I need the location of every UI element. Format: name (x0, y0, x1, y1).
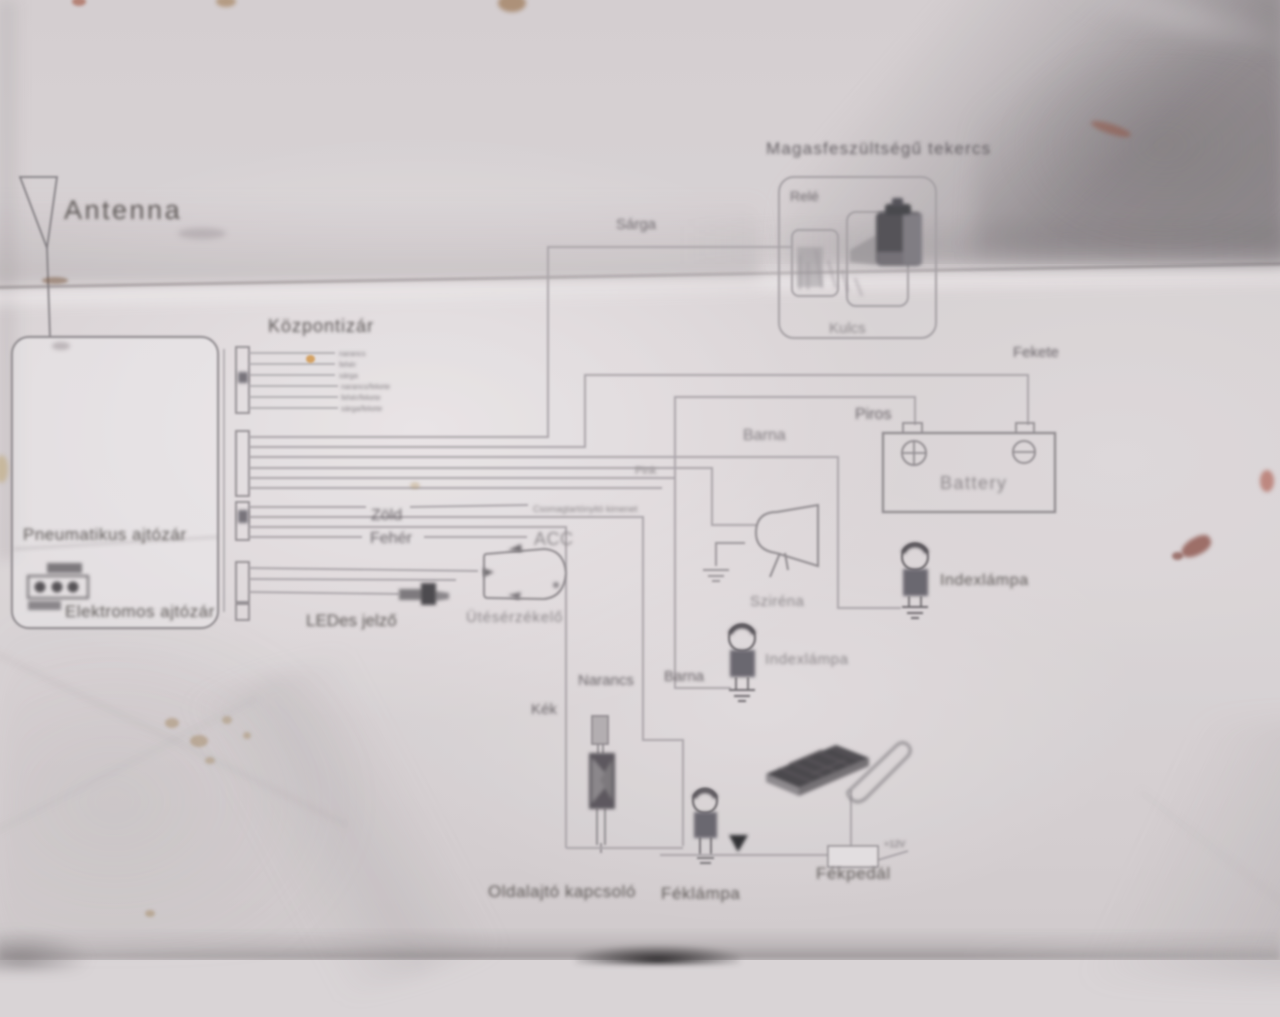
svg-text:+12V: +12V (884, 839, 905, 849)
svg-text:Központizár: Központizár (268, 316, 374, 336)
svg-text:Féklámpa: Féklámpa (661, 884, 740, 903)
svg-text:Piros: Piros (855, 406, 891, 423)
svg-text:Kulcs: Kulcs (829, 320, 866, 337)
svg-text:Pneumatikus ajtózár: Pneumatikus ajtózár (23, 525, 187, 544)
svg-text:LEDes jelző: LEDes jelző (306, 611, 397, 630)
svg-text:narancs/fekete: narancs/fekete (341, 382, 390, 391)
svg-text:Sárga: Sárga (616, 216, 657, 233)
svg-text:ACC: ACC (534, 529, 574, 549)
svg-text:Elektromos ajtózár: Elektromos ajtózár (65, 602, 215, 621)
svg-text:Antenna: Antenna (64, 195, 182, 225)
svg-text:Narancs: Narancs (578, 672, 634, 689)
svg-text:sárga: sárga (339, 371, 359, 380)
svg-text:Battery: Battery (940, 473, 1008, 493)
svg-text:fehér/fekete: fehér/fekete (341, 393, 381, 402)
svg-text:Sziréna: Sziréna (750, 593, 805, 610)
svg-text:Fekete: Fekete (1013, 344, 1059, 361)
svg-text:Csomagtartónyitó kimenet: Csomagtartónyitó kimenet (533, 504, 638, 514)
svg-text:narancs: narancs (339, 349, 366, 358)
svg-text:Magasfeszültségű tekercs: Magasfeszültségű tekercs (766, 139, 991, 158)
svg-text:Fékpedál: Fékpedál (816, 864, 891, 883)
svg-text:Ütésérzékelő: Ütésérzékelő (466, 608, 563, 626)
svg-text:Oldalajtó kapcsoló: Oldalajtó kapcsoló (488, 882, 636, 901)
svg-text:Kék: Kék (531, 701, 557, 718)
svg-text:Indexlámpa: Indexlámpa (765, 651, 849, 668)
svg-text:Indexlámpa: Indexlámpa (940, 572, 1029, 589)
svg-text:Pink: Pink (635, 465, 657, 477)
svg-text:Zöld: Zöld (371, 507, 402, 524)
svg-text:Barna: Barna (664, 668, 705, 685)
svg-text:Relé: Relé (790, 188, 819, 204)
svg-text:sárga/fekete: sárga/fekete (341, 404, 382, 413)
svg-text:Barna: Barna (743, 427, 786, 444)
svg-text:fehér: fehér (339, 360, 357, 369)
svg-text:Fehér: Fehér (370, 530, 412, 547)
